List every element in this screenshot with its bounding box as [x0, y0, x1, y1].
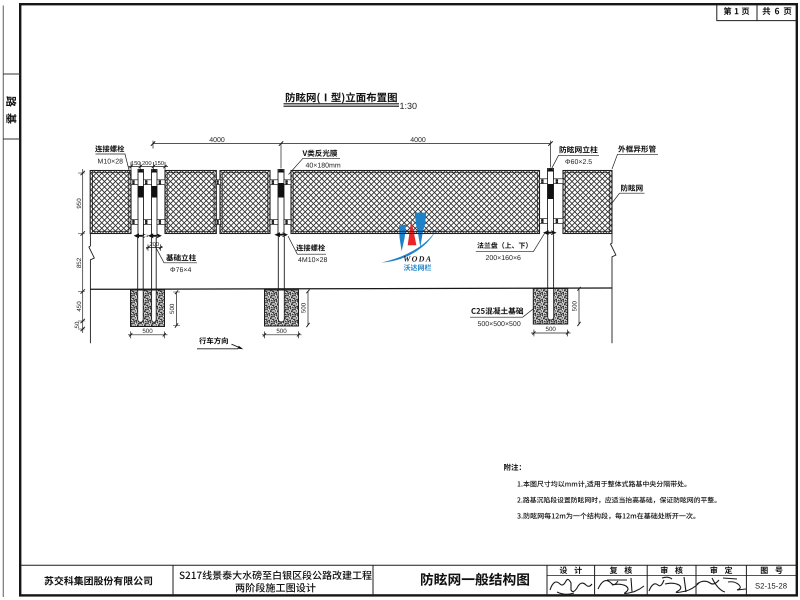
svg-text:150: 150 — [154, 160, 164, 167]
svg-text:200: 200 — [142, 160, 152, 167]
svg-text:S2-15-28: S2-15-28 — [755, 582, 787, 591]
svg-text:200×160×6: 200×160×6 — [486, 255, 522, 262]
svg-text:200: 200 — [149, 241, 159, 248]
svg-text:500: 500 — [169, 303, 176, 314]
svg-text:500×500×500: 500×500×500 — [478, 321, 521, 328]
svg-text:Φ76×4: Φ76×4 — [170, 267, 191, 274]
svg-text:950: 950 — [76, 198, 83, 209]
svg-text:WODA: WODA — [403, 254, 432, 263]
svg-text:Φ60×2.5: Φ60×2.5 — [565, 159, 592, 166]
svg-text:40×180mm: 40×180mm — [306, 163, 341, 170]
svg-text:500: 500 — [142, 328, 153, 335]
svg-text:500: 500 — [572, 300, 579, 311]
svg-text:1:30: 1:30 — [400, 101, 418, 111]
svg-text:4M10×28: 4M10×28 — [298, 257, 327, 264]
svg-text:150: 150 — [131, 160, 141, 167]
svg-text:50: 50 — [74, 321, 81, 328]
svg-text:852: 852 — [76, 257, 83, 268]
svg-text:500: 500 — [276, 328, 287, 335]
svg-text:4000: 4000 — [209, 137, 225, 144]
svg-text:450: 450 — [76, 301, 83, 312]
svg-text:500: 500 — [301, 302, 308, 313]
svg-text:500: 500 — [546, 326, 557, 333]
svg-text:4000: 4000 — [410, 137, 426, 144]
svg-text:M10×28: M10×28 — [98, 159, 124, 166]
